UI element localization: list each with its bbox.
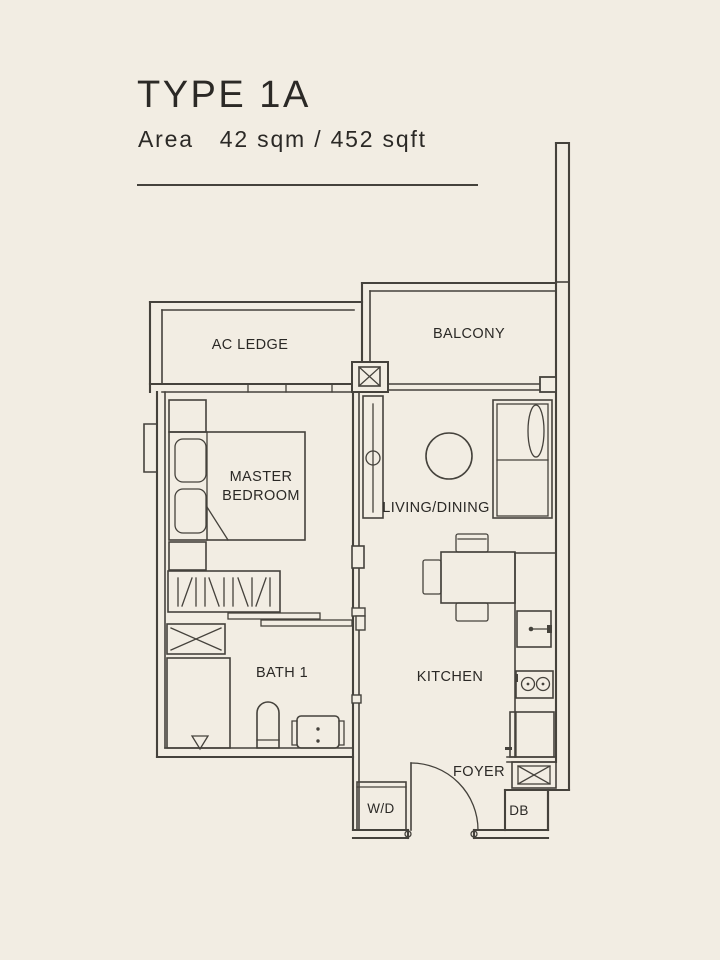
fridge-icon [505, 712, 554, 757]
nightstand-icon [169, 542, 206, 570]
room-label-db: DB [509, 803, 529, 818]
blanket-fold-icon [207, 507, 228, 540]
cooktop-icon [515, 671, 553, 698]
room-label-master-bedroom-2: BEDROOM [222, 488, 300, 504]
bed-icon [169, 432, 305, 540]
room-label-living-dining: LIVING/DINING [382, 500, 490, 516]
counter [515, 553, 556, 757]
bedroom-furniture [168, 400, 305, 612]
chair-icon [456, 534, 488, 552]
kitchen-sink-icon [517, 611, 552, 647]
wardrobe-icon [168, 571, 280, 612]
ac-column-icon [352, 362, 388, 392]
nightstand-icon [169, 400, 206, 432]
ledge-x-box-icon [167, 624, 225, 654]
pillow-icon [175, 489, 206, 533]
sofa-icon [493, 400, 552, 518]
room-label-ac-ledge: AC LEDGE [212, 337, 289, 353]
bath-sliding-door-icon [228, 613, 352, 626]
shower-icon [167, 658, 230, 749]
toilet-icon [257, 702, 279, 748]
room-label-balcony: BALCONY [433, 326, 505, 342]
chair-icon [423, 560, 441, 594]
room-label-kitchen: KITCHEN [417, 669, 483, 685]
bath-fixtures [167, 613, 352, 749]
round-table-icon [426, 433, 472, 479]
pillow-icon [175, 439, 206, 482]
ledge-x-box-icon [512, 762, 556, 788]
balcony-sliding-door-icon [388, 377, 556, 392]
walls [144, 143, 569, 838]
room-label-wd: W/D [367, 801, 394, 816]
bedroom-sliding-door-icon [363, 396, 383, 518]
room-label-master-bedroom-1: MASTER [230, 469, 293, 485]
floor-plan: AC LEDGE BALCONY MASTER BEDROOM LIVING/D… [0, 0, 720, 960]
room-label-foyer: FOYER [453, 764, 505, 780]
kitchen-fixtures [423, 534, 556, 757]
vanity-sink-icon [292, 716, 344, 748]
room-label-bath-1: BATH 1 [256, 665, 308, 681]
dining-table-icon [423, 534, 515, 621]
chair-icon [456, 603, 488, 621]
